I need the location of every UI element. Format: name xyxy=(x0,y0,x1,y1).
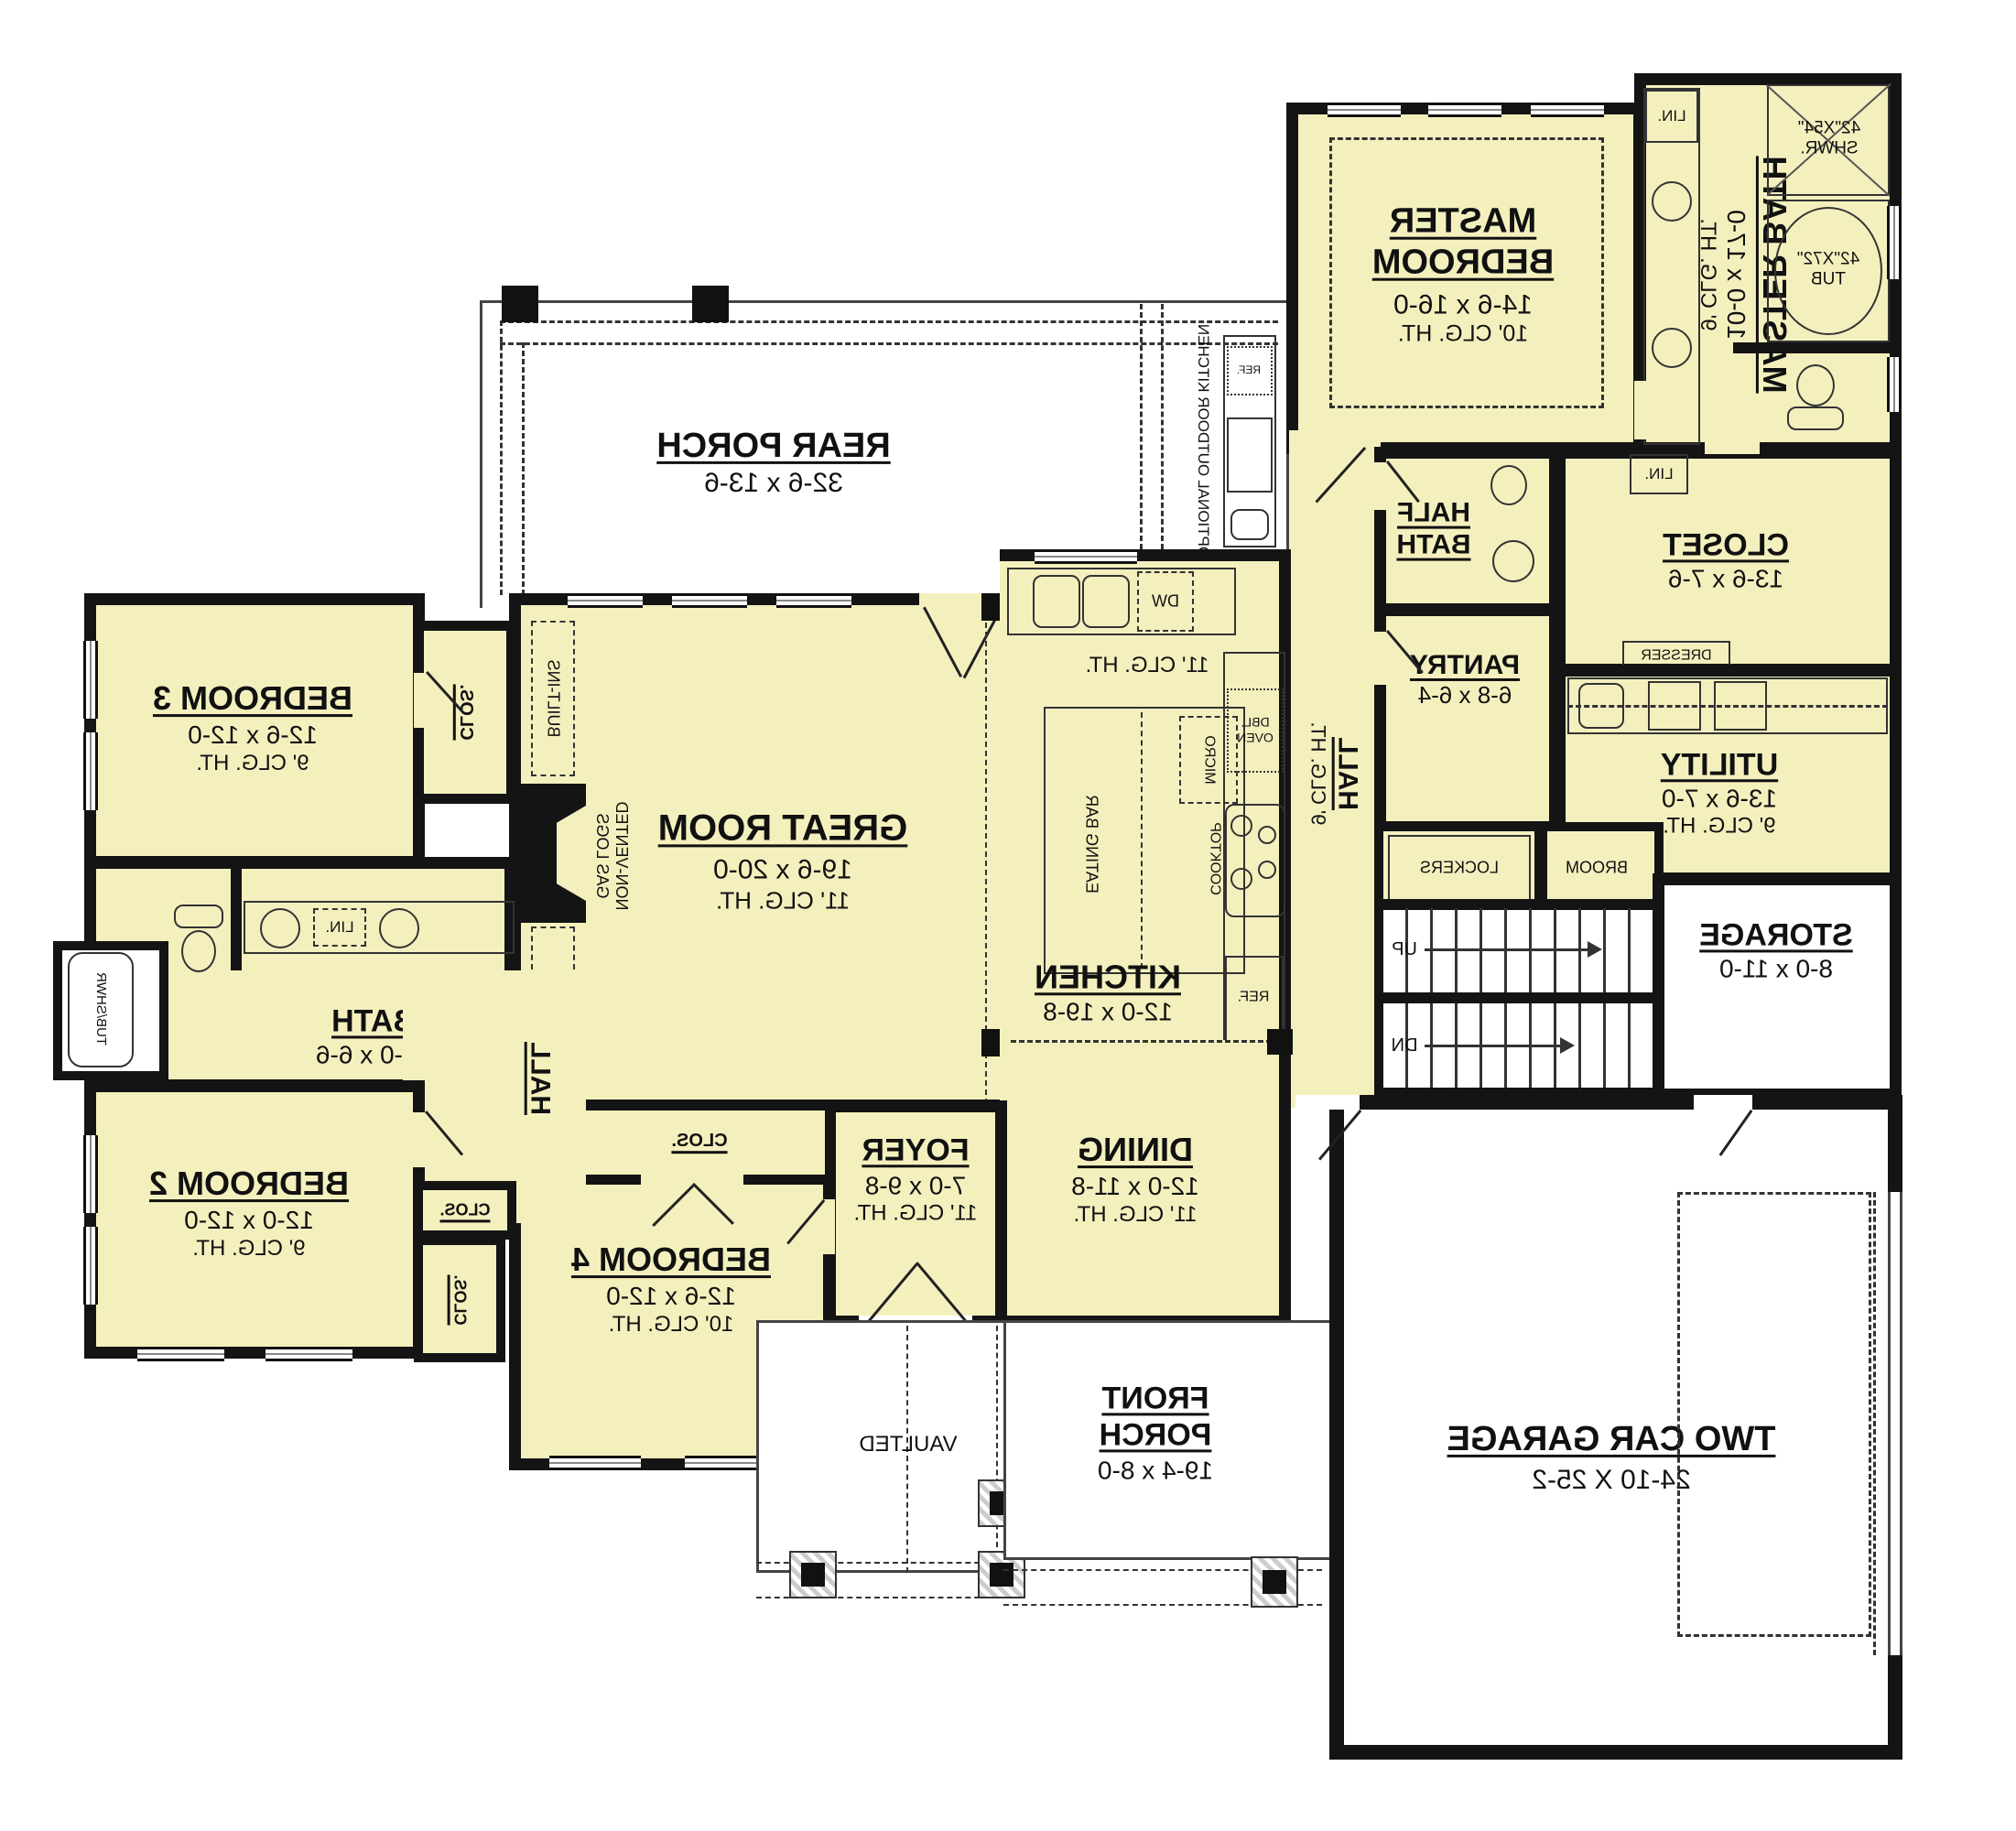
ref-label: REF. xyxy=(1238,990,1270,1007)
room-storage xyxy=(1653,873,1902,1100)
master-bath-clg: 9' CLG. HT. xyxy=(1695,218,1720,330)
master-clg: 10' CLG. HT. xyxy=(1398,321,1528,349)
bedroom2-dims: 12-0 x 12-0 xyxy=(184,1206,314,1236)
kitchen-clg-label: 11' CLG. HT. xyxy=(1086,653,1209,678)
lin-label: LIN. xyxy=(1657,107,1685,125)
burner xyxy=(1258,861,1276,879)
front-porch-dims: 19-4 x 8-0 xyxy=(1098,1456,1213,1486)
up-label: UP xyxy=(1392,939,1417,961)
great-room-clg: 11' CLG. HT. xyxy=(716,886,850,915)
kitchen-dims: 12-0 x 19-8 xyxy=(1043,997,1173,1027)
tub-text: TUB xyxy=(1811,270,1846,290)
closet-door-opening xyxy=(1705,442,1760,454)
lin-label: LIN. xyxy=(1644,465,1673,483)
dining-label: DINING 12-0 x 11-8 11' CLG. HT. xyxy=(1071,1131,1199,1228)
dining-dash-wall xyxy=(1011,1040,1280,1043)
gas-logs-1: NON-VENTED xyxy=(612,801,631,910)
sink xyxy=(1652,181,1692,222)
foyer-clg: 11' CLG. HT. xyxy=(854,1200,978,1226)
lockers-label: LOCKERS xyxy=(1420,858,1499,877)
eating-bar-label: EATING BAR xyxy=(1081,795,1100,894)
storage-label: STORAGE 8-0 x 11-0 xyxy=(1699,916,1853,983)
up-arrow xyxy=(1425,948,1589,951)
bedroom2-clg: 9' CLG. HT. xyxy=(192,1236,305,1262)
porch-column xyxy=(789,1551,837,1598)
pantry-dims: 6-8 x 6-4 xyxy=(1418,681,1512,710)
column-core xyxy=(990,1563,1013,1587)
bedroom3-clg: 9' CLG. HT. xyxy=(196,751,309,776)
sink xyxy=(260,908,300,948)
window xyxy=(266,1347,352,1361)
closet-name: CLOSET xyxy=(1663,526,1789,563)
column-core xyxy=(801,1563,825,1587)
master-name-1: MASTER xyxy=(1390,201,1536,243)
burner xyxy=(1230,868,1252,890)
room-pantry xyxy=(1374,604,1561,833)
half-bath-door-opening xyxy=(1374,462,1386,510)
utility-clg: 9' CLG. HT. xyxy=(1663,813,1775,839)
burner xyxy=(1230,815,1252,837)
half-bath-name-2: BATH xyxy=(1396,529,1470,561)
window xyxy=(1887,357,1902,412)
dw-label: DW xyxy=(1152,591,1179,611)
porch-beam-line xyxy=(522,342,525,595)
tub-label: 42"X72" TUB xyxy=(1797,250,1859,291)
bedroom3-dims: 12-6 x 12-0 xyxy=(188,720,318,751)
gas-logs-2: GAS LOGS xyxy=(592,813,612,898)
gas-logs-label: NON-VENTED GAS LOGS xyxy=(592,801,631,910)
porch-beam-line xyxy=(500,320,503,595)
porch-column xyxy=(502,286,538,322)
outdoor-kitchen-label: OPTIONAL OUTDOOR KITCHEN xyxy=(1194,324,1212,558)
great-room-dims: 19-6 x 20-0 xyxy=(713,854,852,886)
storage-door-opening xyxy=(1694,1095,1752,1110)
hall-left-label: HALL xyxy=(524,1042,556,1115)
master-bath-door-opening xyxy=(1634,381,1646,439)
garage-parking-outline xyxy=(1677,1192,1871,1637)
foyer-name: FOYER xyxy=(862,1132,969,1168)
front-porch-name-1: FRONT xyxy=(1101,1380,1209,1416)
porch-roof-line xyxy=(1161,304,1164,549)
burner xyxy=(1258,826,1276,844)
kitchen-name: KITCHEN xyxy=(1035,958,1181,996)
window xyxy=(137,1347,224,1361)
bedroom4-dims: 12-6 x 12-0 xyxy=(606,1282,736,1312)
tub-shower-label: TUB/SHWR xyxy=(92,972,109,1046)
pantry-label: PANTRY 6-8 x 6-4 xyxy=(1410,649,1520,710)
tub-size: 42"X72" xyxy=(1797,250,1859,270)
outdoor-grill xyxy=(1227,417,1273,493)
window xyxy=(83,1135,98,1213)
column xyxy=(1267,1029,1293,1055)
dn-label: DN xyxy=(1392,1035,1418,1057)
master-dims: 14-6 x 16-0 xyxy=(1393,288,1533,320)
closet-label: CLOSET 13-6 x 7-6 xyxy=(1663,526,1789,593)
great-room-name: GREAT ROOM xyxy=(658,807,908,850)
foyer-dims: 7-0 x 9-8 xyxy=(865,1170,967,1200)
porch-column xyxy=(1251,1556,1298,1608)
garage-door-opening xyxy=(1888,1192,1902,1655)
dbl-oven-2: OVEN xyxy=(1237,730,1274,745)
kitchen-sink xyxy=(1082,575,1130,628)
b3-closet-door-opening xyxy=(414,673,426,728)
bedroom3-name: BEDROOM 3 xyxy=(153,679,352,718)
column-core xyxy=(1263,1570,1286,1594)
mudroom-garage-door-opening xyxy=(1295,1095,1360,1110)
broom-label: BROOM xyxy=(1566,858,1628,877)
kitchen-label: KITCHEN 12-0 x 19-8 xyxy=(1035,958,1181,1027)
utility-dims: 13-6 x 7-0 xyxy=(1662,783,1777,813)
bedroom3-closet-label: CLOS. xyxy=(454,684,476,740)
sink xyxy=(379,908,419,948)
island-dash xyxy=(1141,712,1143,969)
bedroom4-name: BEDROOM 4 xyxy=(571,1241,771,1279)
wall xyxy=(1733,342,1890,353)
toilet-bowl xyxy=(181,930,216,972)
storage-name: STORAGE xyxy=(1699,916,1853,953)
lin-label: LIN. xyxy=(325,918,353,937)
garage-door-dash xyxy=(1873,1192,1876,1655)
dining-clg: 11' CLG. HT. xyxy=(1074,1202,1198,1228)
window xyxy=(568,593,643,608)
corner-sink xyxy=(1492,540,1534,582)
toilet-bowl xyxy=(1490,465,1527,505)
bedroom2-name: BEDROOM 2 xyxy=(149,1165,349,1203)
bedroom2-closet-b-label: CLOS. xyxy=(450,1274,469,1325)
pantry-name: PANTRY xyxy=(1410,649,1520,681)
master-bath-dims: 10-0 x 17-0 xyxy=(1720,210,1750,340)
half-bath-label: HALF BATH xyxy=(1396,497,1470,562)
bedroom2-closet-a-label: CLOS. xyxy=(439,1200,490,1219)
shower-text: SHWR. xyxy=(1800,139,1858,159)
master-bedroom-label: MASTER BEDROOM 14-6 x 16-0 10' CLG. HT. xyxy=(1372,201,1554,349)
hall-right-label: HALL 9' CLG. HT. xyxy=(1306,721,1363,825)
sink xyxy=(1652,328,1692,368)
window xyxy=(83,641,98,719)
window xyxy=(1428,103,1501,117)
master-name-2: BEDROOM xyxy=(1372,243,1554,284)
hall-name: HALL xyxy=(1331,737,1363,810)
toilet-tank xyxy=(1787,406,1844,430)
foyer-label: FOYER 7-0 x 9-8 11' CLG. HT. xyxy=(854,1132,978,1226)
shower-size: 42"X54" xyxy=(1798,119,1860,139)
dresser-label: DRESSER xyxy=(1641,648,1711,666)
utility-name: UTILITY xyxy=(1661,746,1778,783)
cooktop-label: COOKTOP xyxy=(1206,822,1223,895)
vaulted-label: VAULTED xyxy=(859,1432,957,1457)
pantry-door-opening xyxy=(1374,632,1386,685)
dining-name: DINING xyxy=(1078,1131,1193,1169)
front-porch-label: FRONT PORCH 19-4 x 8-0 xyxy=(1098,1380,1213,1485)
bedroom4-closet-label: CLOS. xyxy=(671,1131,727,1153)
outdoor-ref-label: REF. xyxy=(1237,363,1261,376)
half-bath-name-1: HALF xyxy=(1397,497,1470,529)
wall xyxy=(231,857,242,970)
garage-dims: 24-10 X 25-2 xyxy=(1532,1464,1690,1496)
outdoor-sink xyxy=(1230,509,1269,540)
great-room-label: GREAT ROOM 19-6 x 20-0 11' CLG. HT. xyxy=(658,807,908,914)
bedroom4-label: BEDROOM 4 12-6 x 12-0 10' CLG. HT. xyxy=(571,1241,771,1338)
bedroom2-label: BEDROOM 2 12-0 x 12-0 9' CLG. HT. xyxy=(149,1165,349,1262)
window xyxy=(672,593,747,608)
porch-roof-line xyxy=(1140,304,1143,549)
closet-dims: 13-6 x 7-6 xyxy=(1668,564,1783,594)
shower-label: 42"X54" SHWR. xyxy=(1798,119,1860,160)
window xyxy=(776,593,851,608)
dbl-oven-label: DBL. OVEN xyxy=(1237,714,1274,744)
dbl-oven-1: DBL. xyxy=(1241,714,1269,730)
window xyxy=(1887,206,1902,279)
window xyxy=(1531,103,1604,117)
kitchen-sink xyxy=(1033,575,1080,628)
window xyxy=(1035,549,1137,564)
window xyxy=(549,1456,641,1470)
b2-door-opening xyxy=(413,1112,425,1167)
toilet-bowl xyxy=(1796,364,1835,406)
built-ins-label: BUILT-INS xyxy=(543,660,562,738)
dn-arrow xyxy=(1425,1045,1562,1047)
b4-door-opening xyxy=(823,1199,835,1254)
porch-column xyxy=(692,286,729,322)
utility-dash-line xyxy=(1567,705,1888,708)
window xyxy=(1328,103,1401,117)
bedroom3-label: BEDROOM 3 12-6 x 12-0 9' CLG. HT. xyxy=(153,679,352,776)
micro-label: MICRO xyxy=(1200,735,1218,784)
hall-clg: 9' CLG. HT. xyxy=(1306,721,1329,825)
toilet-tank xyxy=(174,905,223,928)
rear-porch-name: REAR PORCH xyxy=(656,426,890,467)
floor-plan: REAR PORCH 32-6 x 13-6 REF. OPTIONAL OUT… xyxy=(0,0,2016,1831)
utility-label: UTILITY 13-6 x 7-0 9' CLG. HT. xyxy=(1661,746,1778,839)
dining-dims: 12-0 x 11-8 xyxy=(1071,1172,1199,1202)
window xyxy=(83,1227,98,1305)
bedroom4-clg: 10' CLG. HT. xyxy=(609,1312,734,1338)
rear-porch-label: REAR PORCH 32-6 x 13-6 xyxy=(656,426,890,499)
front-porch-name-2: PORCH xyxy=(1100,1416,1212,1453)
window xyxy=(83,732,98,810)
wall xyxy=(1534,822,1547,910)
rear-porch-dims: 32-6 x 13-6 xyxy=(704,467,843,499)
storage-dims: 8-0 x 11-0 xyxy=(1719,954,1833,984)
